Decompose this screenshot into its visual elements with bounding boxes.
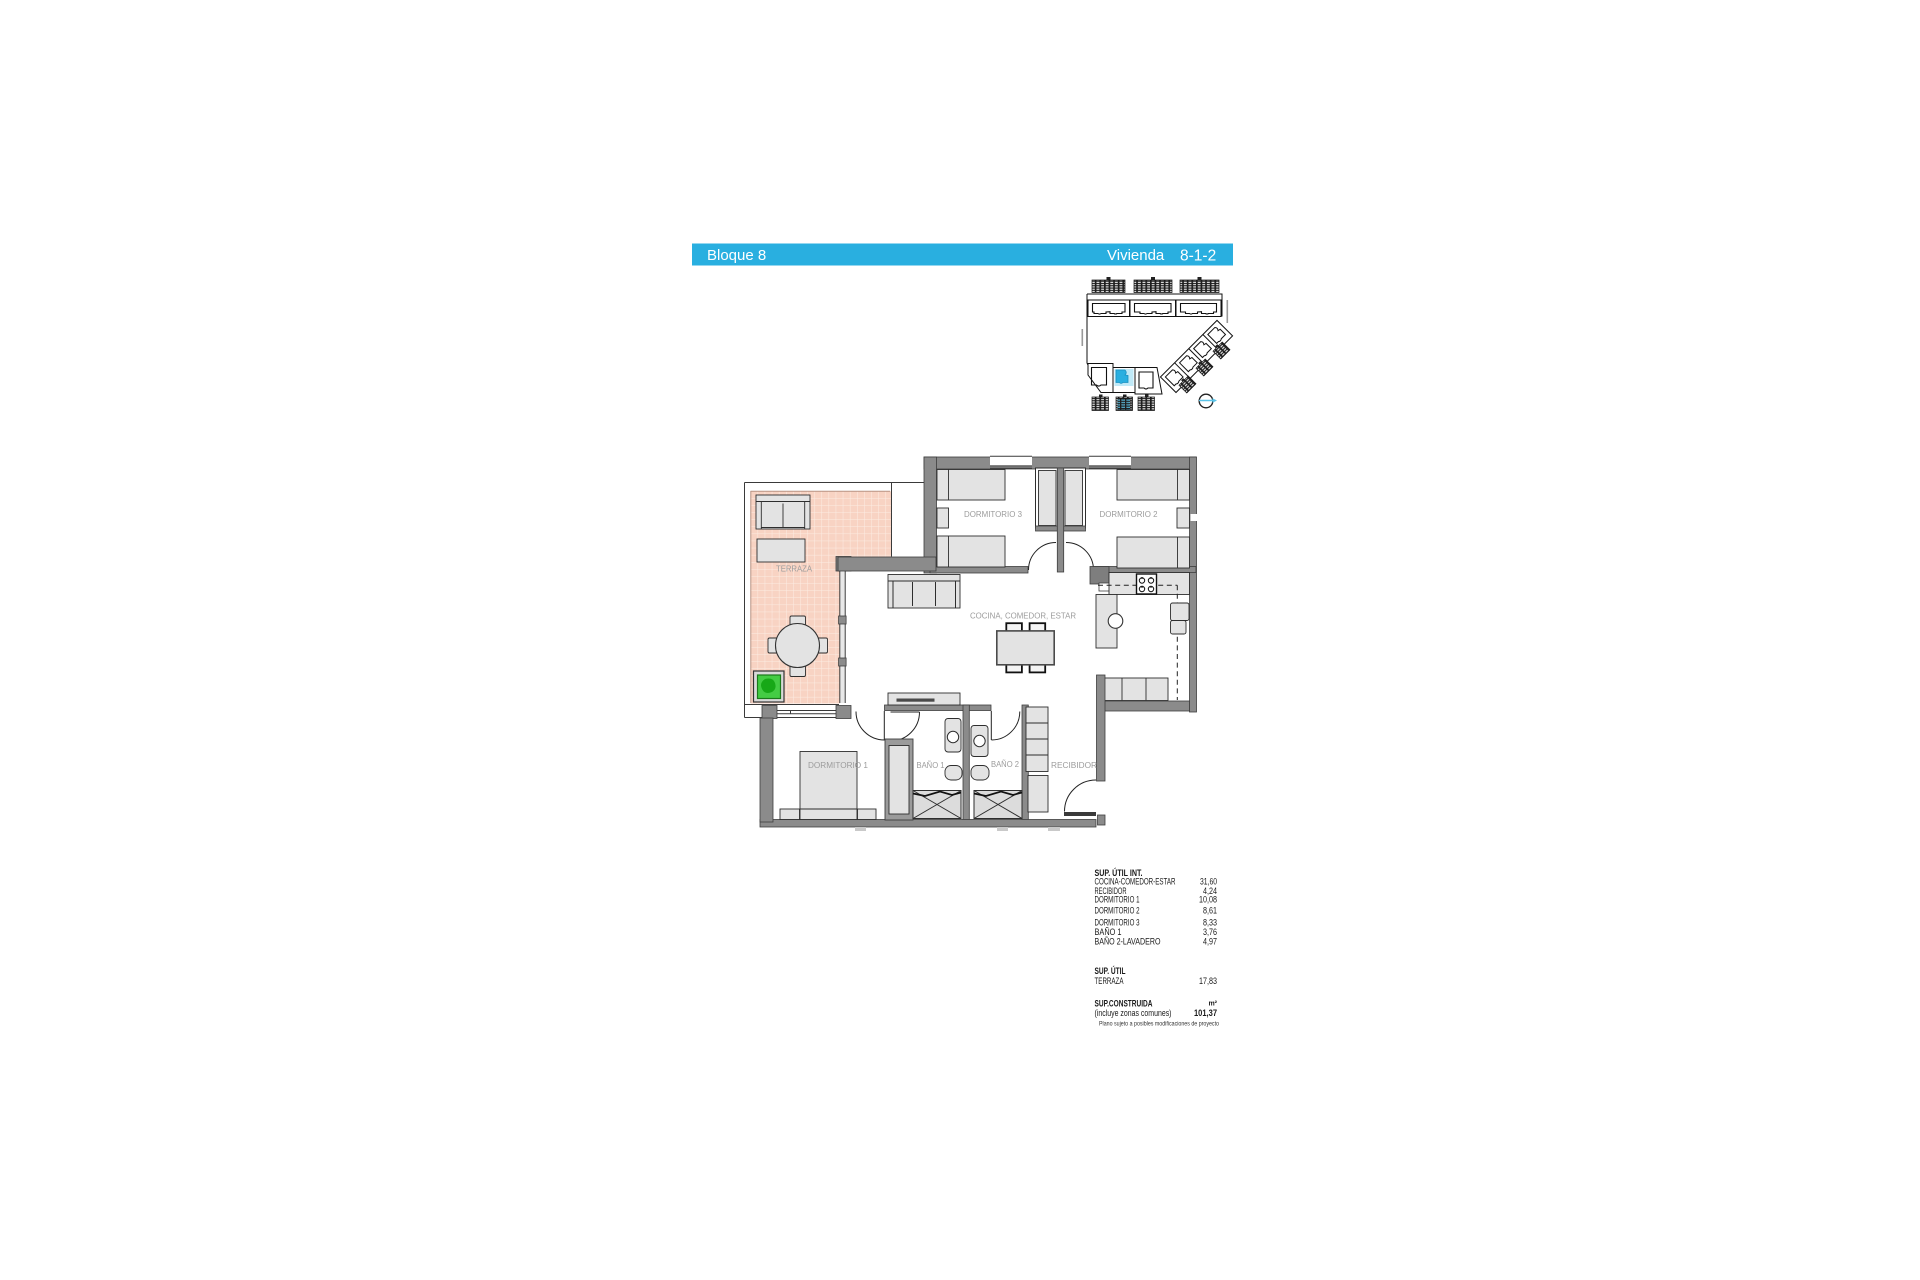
svg-text:RECIBIDOR: RECIBIDOR bbox=[1051, 761, 1097, 770]
svg-text:31,60: 31,60 bbox=[1200, 877, 1217, 887]
svg-text:DORMITORIO 2: DORMITORIO 2 bbox=[1095, 906, 1140, 916]
svg-text:8-1-2: 8-1-2 bbox=[1180, 248, 1216, 265]
svg-text:COCINA-COMEDOR-ESTAR: COCINA-COMEDOR-ESTAR bbox=[1095, 877, 1176, 887]
svg-text:TERRAZA: TERRAZA bbox=[776, 565, 813, 574]
svg-text:BAÑO 2: BAÑO 2 bbox=[991, 759, 1019, 769]
svg-text:3,76: 3,76 bbox=[1203, 927, 1217, 937]
svg-text:DORMITORIO 1: DORMITORIO 1 bbox=[1095, 895, 1140, 905]
svg-text:DORMITORIO 3: DORMITORIO 3 bbox=[964, 510, 1022, 519]
svg-text:SUP. ÚTIL: SUP. ÚTIL bbox=[1095, 965, 1126, 976]
svg-text:m²: m² bbox=[1208, 1001, 1217, 1008]
svg-text:DORMITORIO 1: DORMITORIO 1 bbox=[808, 761, 868, 770]
svg-text:BAÑO 1: BAÑO 1 bbox=[1095, 927, 1122, 937]
svg-text:(incluye zonas comunes): (incluye zonas comunes) bbox=[1095, 1008, 1172, 1018]
svg-text:DORMITORIO 3: DORMITORIO 3 bbox=[1095, 918, 1140, 928]
svg-text:SUP.CONSTRUIDA: SUP.CONSTRUIDA bbox=[1095, 999, 1153, 1009]
svg-text:Plano sujeto a posibles modifi: Plano sujeto a posibles modificaciones d… bbox=[1099, 1021, 1219, 1028]
svg-text:Vivienda: Vivienda bbox=[1107, 247, 1165, 264]
svg-text:COCINA, COMEDOR, ESTAR: COCINA, COMEDOR, ESTAR bbox=[970, 612, 1076, 621]
svg-text:TERRAZA: TERRAZA bbox=[1095, 976, 1124, 986]
svg-text:BAÑO 1: BAÑO 1 bbox=[917, 760, 945, 770]
svg-text:101,37: 101,37 bbox=[1194, 1008, 1217, 1018]
svg-text:Bloque 8: Bloque 8 bbox=[707, 247, 766, 264]
svg-text:DORMITORIO 2: DORMITORIO 2 bbox=[1100, 510, 1158, 519]
svg-text:17,83: 17,83 bbox=[1199, 976, 1217, 986]
svg-text:8,33: 8,33 bbox=[1203, 918, 1217, 928]
svg-text:8,61: 8,61 bbox=[1203, 906, 1217, 916]
svg-text:BAÑO 2-LAVADERO: BAÑO 2-LAVADERO bbox=[1095, 937, 1161, 947]
svg-text:10,08: 10,08 bbox=[1199, 895, 1217, 905]
svg-text:4,97: 4,97 bbox=[1203, 937, 1217, 947]
